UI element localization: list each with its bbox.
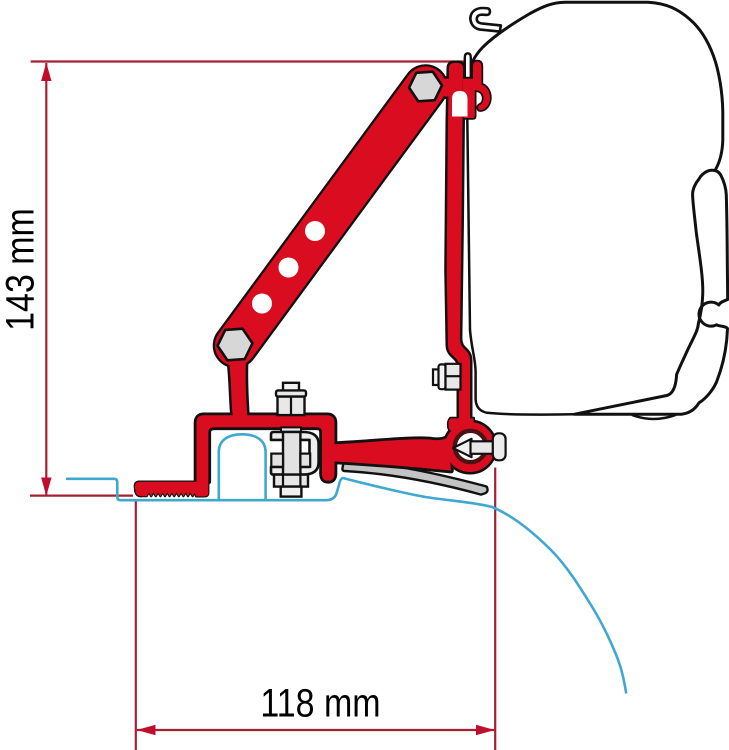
svg-text:118 mm: 118 mm bbox=[260, 681, 380, 725]
svg-text:143 mm: 143 mm bbox=[0, 208, 42, 331]
